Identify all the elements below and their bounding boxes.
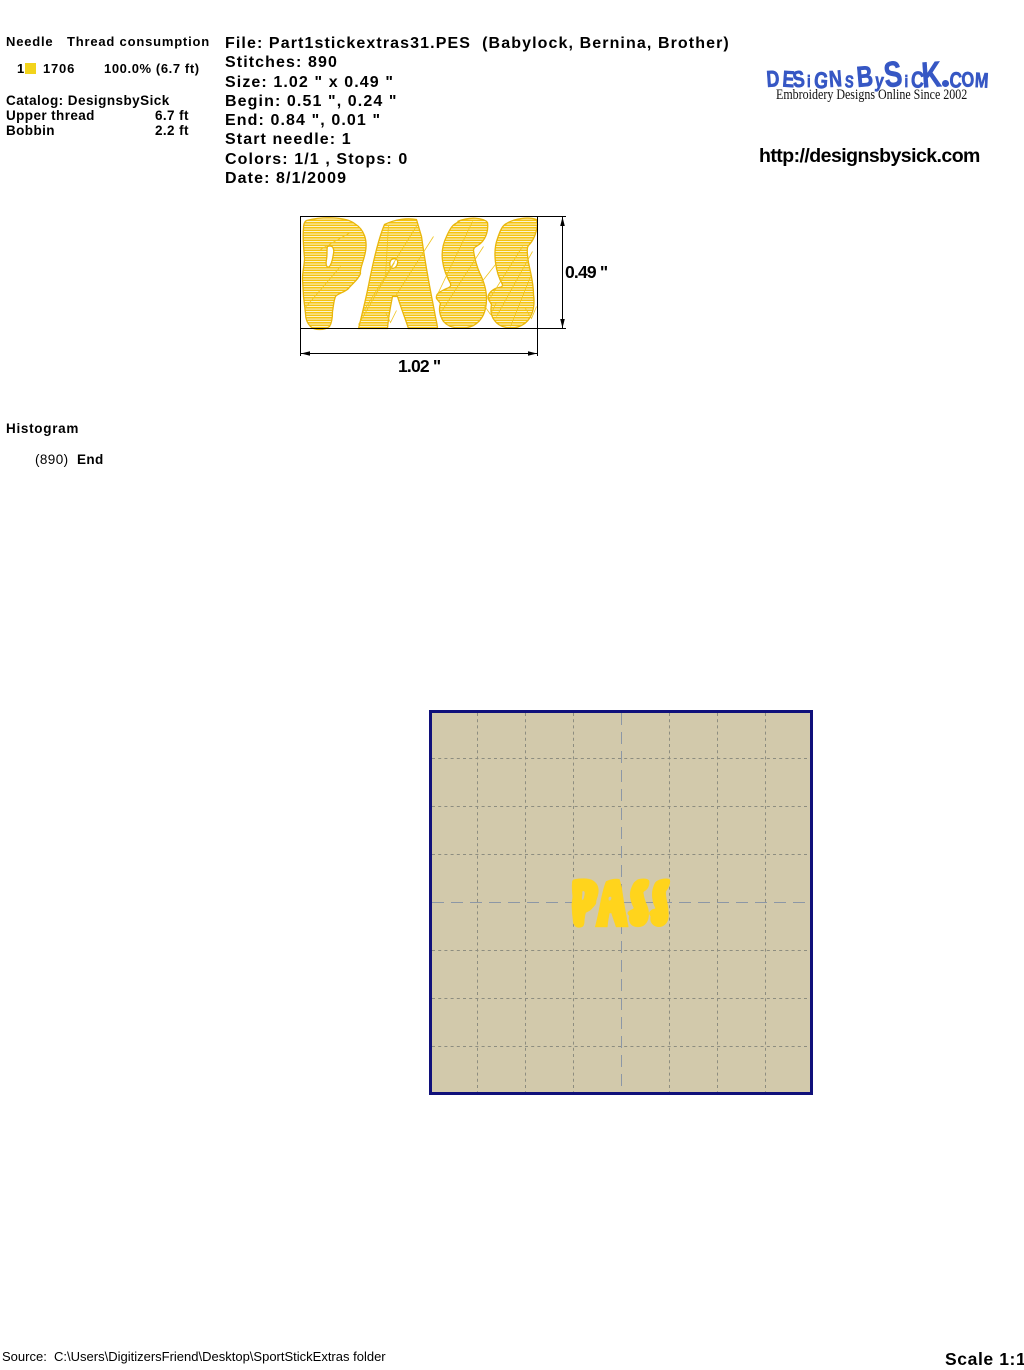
svg-text:M: M (974, 68, 989, 92)
